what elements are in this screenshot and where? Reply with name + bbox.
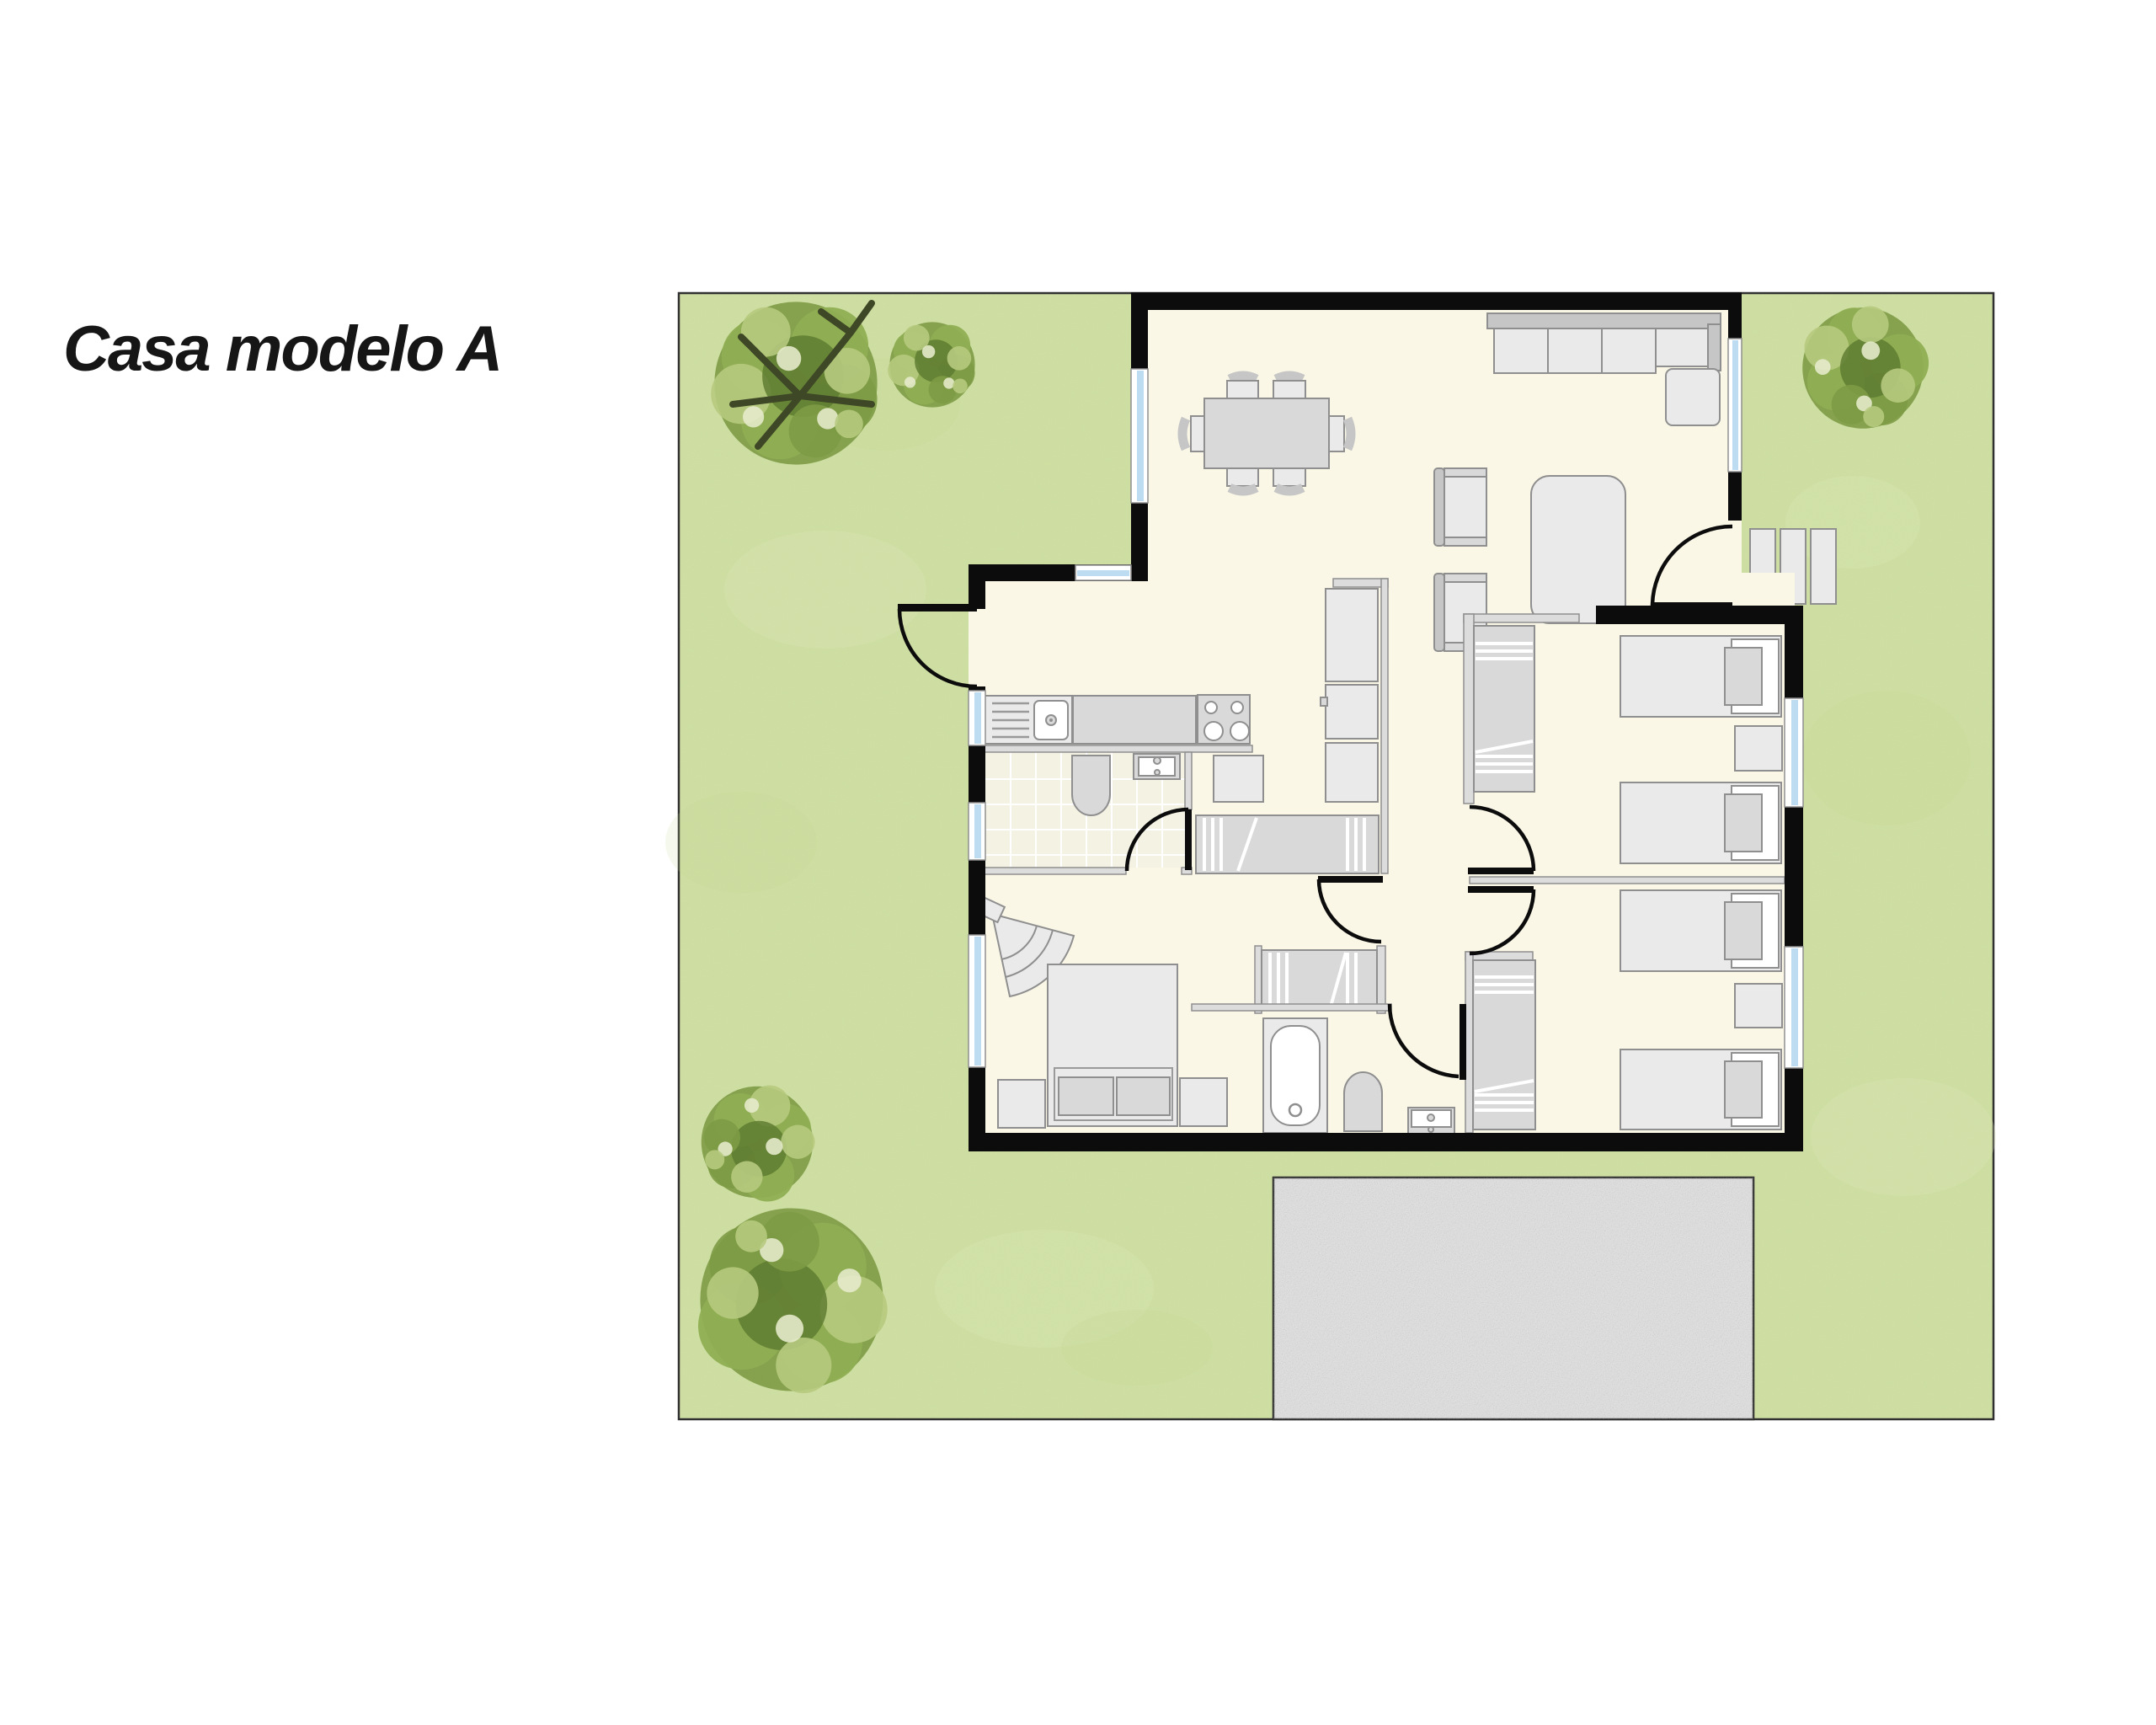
coffee-table-rug	[1531, 476, 1625, 623]
south-wall	[969, 1133, 1803, 1151]
window-living-east	[1728, 339, 1742, 472]
fridge	[1326, 589, 1378, 681]
dining-table	[1204, 398, 1329, 468]
wardrobe-panel	[1465, 952, 1473, 1133]
single-bed	[1620, 1049, 1781, 1130]
pillow	[1117, 1077, 1170, 1115]
sofa-cushion	[1494, 328, 1548, 373]
driveway	[1273, 1178, 1753, 1419]
window-kitchen	[969, 691, 985, 745]
dining-chair-back	[1276, 376, 1303, 379]
side-threshold	[969, 609, 985, 686]
bathroom1-south-wall	[984, 868, 1126, 874]
nightstand	[1735, 984, 1782, 1028]
kitchen-counter	[1073, 696, 1196, 744]
burner	[1230, 722, 1249, 740]
nightstand	[1180, 1078, 1227, 1126]
counter-edge	[984, 745, 1252, 752]
dining-chair-back	[1230, 488, 1257, 491]
window-bedroom1	[1785, 698, 1803, 807]
burner	[1204, 722, 1223, 740]
bathroom1-east-wall	[1185, 752, 1192, 809]
wardrobe-panel	[1464, 614, 1474, 804]
dining-chair	[1329, 416, 1344, 451]
dining-chair-back	[1276, 488, 1303, 491]
dining-chair-back	[1347, 419, 1351, 449]
cabinet-handle	[1321, 697, 1327, 706]
dishwasher	[1214, 756, 1263, 802]
window-notch	[1075, 565, 1131, 580]
sofa-side-back	[1708, 324, 1721, 371]
sofa-cushion	[1548, 328, 1602, 373]
burner	[1231, 702, 1243, 713]
nightstand	[1735, 726, 1782, 771]
pillow	[1059, 1077, 1113, 1115]
window-bedroom2	[969, 935, 985, 1067]
toilet	[1344, 1072, 1382, 1131]
sofa-corner-cushion	[1656, 328, 1708, 366]
entry-step	[1811, 529, 1836, 604]
bedroom-partition	[1470, 877, 1785, 884]
cabinet-panel	[1381, 579, 1388, 873]
cabinet-panel	[1333, 579, 1388, 587]
west-wall	[969, 745, 985, 803]
dining-chair-back	[1230, 376, 1257, 379]
bedroom2-closet	[1255, 946, 1385, 1013]
sofa-chaise	[1666, 369, 1720, 425]
armchair	[1434, 468, 1486, 546]
sofa-cushion	[1602, 328, 1656, 373]
window-bathroom1	[969, 803, 985, 860]
cabinet	[1326, 743, 1378, 802]
sofa-back	[1487, 313, 1721, 328]
single-bed	[1620, 782, 1781, 863]
page-title: Casa modelo A	[63, 313, 501, 385]
dining-chair-back	[1182, 419, 1186, 449]
cabinet	[1326, 685, 1378, 739]
floor-plan-canvas: Casa modelo A	[0, 0, 2156, 1725]
window-living-west	[1131, 369, 1148, 503]
entry-threshold	[1728, 521, 1742, 605]
north-wall	[1131, 292, 1742, 310]
window-bedroom3	[1785, 947, 1803, 1068]
burner	[1205, 702, 1217, 713]
toilet	[1072, 756, 1110, 815]
nightstand	[998, 1080, 1045, 1128]
single-bed	[1620, 890, 1781, 971]
east-wall	[1785, 624, 1803, 698]
bathtub-basin	[1271, 1026, 1320, 1125]
single-bed	[1620, 636, 1781, 717]
bathroom2-north-wall	[1192, 1004, 1391, 1011]
wardrobe-panel	[1464, 614, 1579, 622]
hall-closet	[1196, 815, 1379, 873]
